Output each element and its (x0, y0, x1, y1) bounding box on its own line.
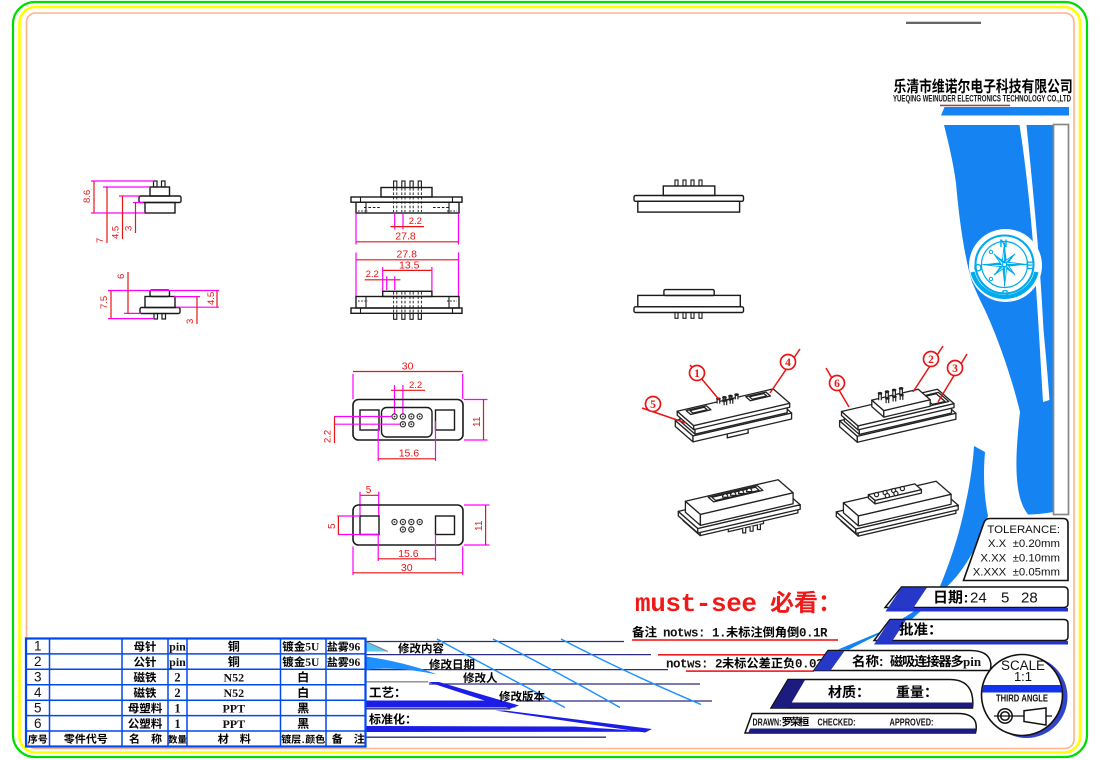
svg-text:X.X ±0.20mm: X.X ±0.20mm (988, 538, 1060, 550)
svg-text:must-see: must-see (635, 589, 757, 619)
svg-text:3: 3 (124, 226, 135, 231)
svg-text:1:1: 1:1 (1014, 669, 1032, 684)
svg-text:6: 6 (116, 274, 127, 279)
svg-text:4: 4 (34, 685, 42, 700)
svg-text:1: 1 (694, 368, 700, 380)
svg-text:5: 5 (650, 399, 656, 411)
svg-text:15.6: 15.6 (399, 448, 420, 460)
svg-text:3: 3 (34, 670, 42, 685)
svg-text:24528: 24528 (970, 590, 1038, 607)
svg-text:2: 2 (34, 654, 42, 669)
svg-text:TOLERANCE:: TOLERANCE: (987, 524, 1060, 536)
svg-text:DRAWN:: DRAWN: (753, 718, 782, 729)
svg-text:N: N (1000, 238, 1008, 250)
svg-text:11: 11 (474, 520, 485, 531)
svg-text:pin: pin (169, 640, 186, 654)
svg-text:S: S (1001, 289, 1008, 301)
svg-text:5: 5 (34, 700, 42, 715)
svg-text:PPT: PPT (222, 701, 245, 715)
svg-text:THIRD ANGLE: THIRD ANGLE (996, 693, 1048, 705)
svg-text:1: 1 (174, 701, 180, 715)
svg-text:pin: pin (169, 655, 186, 669)
svg-text:5: 5 (327, 523, 338, 529)
svg-text:2: 2 (928, 354, 934, 366)
svg-text:96: 96 (349, 642, 361, 654)
svg-text:1: 1 (34, 639, 42, 654)
svg-text:7: 7 (95, 238, 106, 243)
svg-text:2.2: 2.2 (366, 269, 379, 280)
svg-text:CHECKED:: CHECKED: (818, 718, 856, 729)
svg-text:15.6: 15.6 (398, 548, 419, 560)
svg-text:E: E (1026, 260, 1033, 272)
svg-text:O: O (974, 263, 983, 275)
svg-text:pin: pin (963, 654, 982, 669)
svg-text:2.2: 2.2 (323, 430, 334, 443)
svg-text:X.XX ±0.10mm: X.XX ±0.10mm (980, 552, 1060, 564)
svg-text:3: 3 (952, 363, 958, 375)
svg-text::: : (879, 654, 884, 669)
svg-text:2: 2 (174, 686, 180, 700)
svg-text:6: 6 (34, 716, 42, 731)
svg-text:4.5: 4.5 (206, 292, 217, 305)
svg-text:3: 3 (185, 319, 196, 324)
svg-text:5U: 5U (305, 642, 320, 654)
svg-text:PPT: PPT (222, 717, 245, 731)
svg-text:5: 5 (366, 485, 372, 496)
svg-text:N52: N52 (223, 671, 244, 685)
svg-text:notws: 2: notws: 2 (666, 658, 722, 672)
svg-text:30: 30 (402, 361, 414, 373)
svg-text:30: 30 (401, 562, 413, 574)
svg-text:13.5: 13.5 (399, 259, 420, 271)
svg-text:2: 2 (174, 671, 180, 685)
svg-text:27.8: 27.8 (395, 230, 416, 242)
svg-text:N52: N52 (223, 686, 244, 700)
svg-text:5U: 5U (305, 657, 320, 669)
svg-text:11: 11 (472, 416, 483, 427)
svg-text:4.5: 4.5 (111, 226, 122, 239)
svg-text:X.XXX ±0.05mm: X.XXX ±0.05mm (973, 567, 1060, 579)
svg-text:2.2: 2.2 (409, 216, 422, 227)
svg-text:notws: 1.: notws: 1. (663, 627, 726, 641)
svg-text:6: 6 (834, 378, 840, 390)
svg-text:APPROVED:: APPROVED: (890, 718, 934, 729)
svg-text:1: 1 (174, 717, 180, 731)
svg-text:YUEQING WEINUDER ELECTRONICS T: YUEQING WEINUDER ELECTRONICS TECHNOLOGY … (893, 94, 1071, 104)
svg-text:7.5: 7.5 (99, 296, 110, 309)
svg-text:4: 4 (785, 357, 791, 369)
svg-text:2.2: 2.2 (409, 380, 422, 391)
svg-text::: : (964, 590, 969, 607)
svg-text:0.1R: 0.1R (799, 627, 828, 641)
svg-text:8.6: 8.6 (82, 190, 93, 203)
svg-text:96: 96 (349, 657, 361, 669)
svg-text:.: . (302, 735, 305, 746)
